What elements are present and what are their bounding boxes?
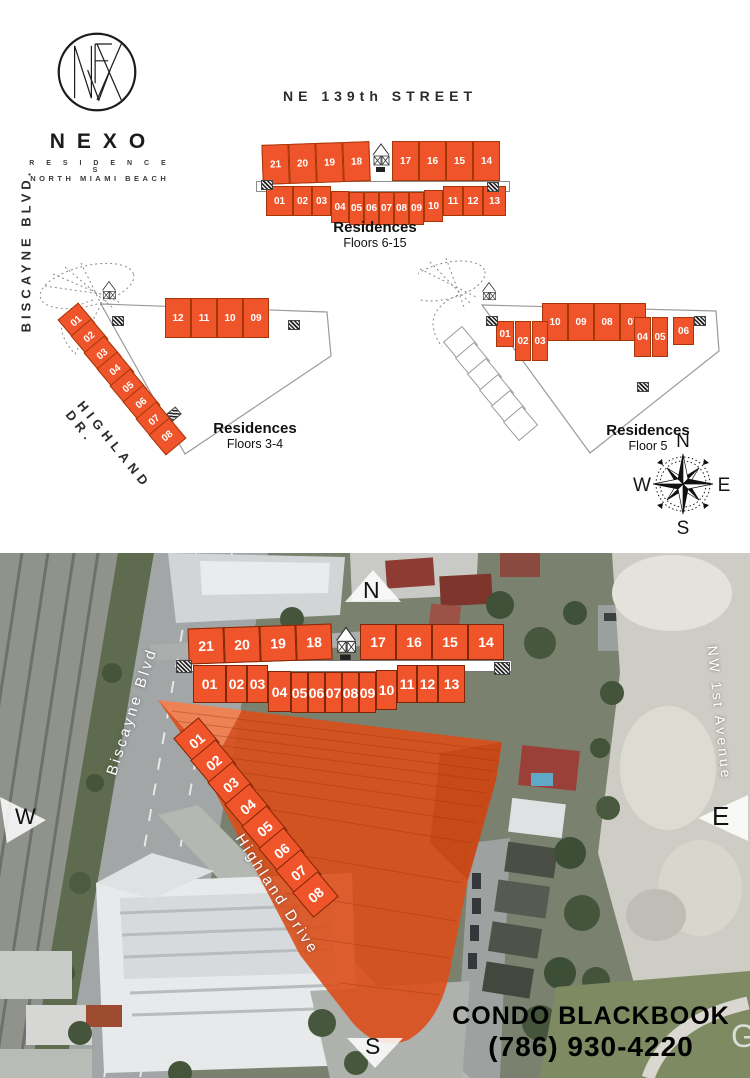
unit-number: 07 bbox=[381, 203, 392, 214]
unit-number: 08 bbox=[343, 685, 359, 701]
unit-number: 15 bbox=[454, 156, 465, 167]
unit-number: 03 bbox=[316, 196, 327, 207]
compass-rose-icon: N E S W bbox=[633, 430, 733, 538]
unit-number: 05 bbox=[654, 332, 665, 343]
stair-core-hatch bbox=[288, 320, 300, 330]
unit-box: 16 bbox=[396, 624, 432, 660]
unit-number: 09 bbox=[360, 685, 376, 701]
unit-number: 11 bbox=[448, 196, 459, 207]
unit-box: 10 bbox=[376, 670, 397, 710]
unit-box: 20 bbox=[223, 626, 260, 663]
aerial-bottom-row: 01020304050607080910111213 bbox=[193, 665, 465, 706]
compass-west-label: W bbox=[633, 475, 651, 496]
unit-box: 08 bbox=[594, 303, 620, 341]
unit-box: 09 bbox=[243, 298, 269, 338]
aerial-keyplan: 21201918 17161514 0102030405060708091011… bbox=[188, 624, 504, 716]
keyplan1-label: Residences Floors 6-15 bbox=[305, 219, 445, 250]
aerial-east-marker: E bbox=[712, 801, 729, 832]
unit-number: 14 bbox=[478, 634, 494, 650]
stair-core-hatch bbox=[694, 316, 706, 326]
unit-box: 11 bbox=[397, 665, 417, 703]
unit-number: 10 bbox=[224, 313, 235, 324]
stair-core-hatch bbox=[487, 182, 499, 192]
unit-box: 18 bbox=[295, 623, 332, 660]
unit-box: 06 bbox=[308, 672, 325, 713]
unit-number: 12 bbox=[467, 196, 478, 207]
unit-box: 09 bbox=[359, 672, 376, 713]
unit-number: 21 bbox=[198, 638, 214, 655]
street-label-ne-139th: NE 139th STREET bbox=[280, 88, 480, 104]
unit-number: 03 bbox=[250, 676, 266, 692]
unit-number: 14 bbox=[481, 156, 492, 167]
unit-number: 02 bbox=[517, 336, 528, 347]
unit-number: 06 bbox=[366, 203, 377, 214]
unit-number: 04 bbox=[272, 684, 288, 700]
unit-number: 01 bbox=[202, 676, 218, 692]
unit-box: 01 bbox=[193, 665, 226, 703]
unit-number: 21 bbox=[270, 159, 282, 170]
core-gap bbox=[480, 279, 498, 309]
unit-box: 14 bbox=[468, 624, 504, 660]
unit-number: 07 bbox=[326, 685, 342, 701]
unit-box: 03 bbox=[247, 665, 268, 703]
unit-box: 09 bbox=[568, 303, 594, 341]
unit-number: 17 bbox=[400, 156, 411, 167]
core-gap bbox=[370, 141, 392, 175]
keyplan2-top-right-units: 12111009 bbox=[165, 298, 269, 338]
unit-number: 13 bbox=[489, 196, 500, 207]
unit-box: 02 bbox=[515, 321, 531, 361]
unit-number: 16 bbox=[427, 156, 438, 167]
aerial-top-left-units: 21201918 bbox=[187, 623, 332, 664]
unit-number: 16 bbox=[406, 634, 422, 650]
core-gap bbox=[100, 278, 118, 308]
unit-number: 08 bbox=[304, 883, 326, 905]
keyplan1-bottom-row: 01020304050607080910111213 bbox=[266, 186, 506, 219]
unit-number: 09 bbox=[575, 317, 586, 328]
unit-number: 10 bbox=[549, 317, 560, 328]
stair-elevator-icon bbox=[100, 278, 118, 308]
keyplan2-top-row: 16151413 12111009 bbox=[100, 278, 118, 308]
unit-box: 10 bbox=[424, 190, 443, 222]
unit-number: 11 bbox=[400, 676, 415, 692]
keyplan1-top-row: 21201918 17161514 bbox=[262, 141, 508, 181]
unit-number: 04 bbox=[637, 332, 648, 343]
keyplan1-top-left-units: 21201918 bbox=[261, 141, 370, 185]
unit-box: 20 bbox=[288, 143, 316, 184]
unit-number: 10 bbox=[379, 682, 395, 698]
unit-box: 11 bbox=[443, 186, 463, 216]
unit-box: 02 bbox=[226, 665, 247, 703]
unit-box: 01 bbox=[496, 321, 514, 347]
unit-number: 01 bbox=[499, 329, 510, 340]
unit-number: 05 bbox=[351, 203, 362, 214]
keyplan2-subtitle: Floors 3-4 bbox=[185, 437, 325, 451]
unit-box: 21 bbox=[261, 144, 289, 185]
unit-box: 12 bbox=[417, 665, 438, 703]
street-label-biscayne-blvd: BISCAYNE BLVD. bbox=[19, 163, 34, 339]
unit-number: 15 bbox=[442, 634, 458, 650]
stair-core-hatch bbox=[486, 316, 498, 326]
unit-number: 08 bbox=[396, 203, 407, 214]
unit-box: 12 bbox=[165, 298, 191, 338]
unit-box: 19 bbox=[259, 625, 296, 662]
unit-number: 02 bbox=[297, 196, 308, 207]
unit-number: 12 bbox=[172, 313, 183, 324]
unit-box: 06 bbox=[673, 317, 694, 345]
aerial-top-row: 21201918 17161514 bbox=[188, 624, 504, 664]
contact-name: CONDO BLACKBOOK bbox=[438, 1001, 744, 1031]
keyplan1-top-right-units: 17161514 bbox=[392, 141, 500, 181]
aerial-top-right-units: 17161514 bbox=[360, 624, 504, 660]
aerial-south-marker: S bbox=[365, 1033, 380, 1060]
unit-number: 20 bbox=[297, 158, 309, 169]
nexo-siteplan-page: NEXO R E S I D E N C E S NORTH MIAMI BEA… bbox=[0, 0, 750, 1078]
unit-number: 18 bbox=[351, 156, 363, 167]
unit-number: 19 bbox=[324, 157, 336, 168]
brand-tagline-residences: R E S I D E N C E S bbox=[20, 160, 175, 174]
unit-box: 19 bbox=[315, 142, 343, 183]
stair-core-hatch bbox=[176, 660, 192, 673]
unit-box: 10 bbox=[217, 298, 243, 338]
unit-number: 04 bbox=[334, 202, 345, 213]
unit-number: 11 bbox=[199, 313, 210, 324]
unit-box: 12 bbox=[463, 186, 483, 216]
stair-core-hatch bbox=[112, 316, 124, 326]
aerial-north-marker: N bbox=[363, 577, 380, 604]
unit-box: 18 bbox=[342, 141, 370, 182]
unit-box: 17 bbox=[392, 141, 419, 181]
unit-box: 11 bbox=[191, 298, 217, 338]
stair-elevator-icon bbox=[333, 624, 359, 664]
unit-box: 04 bbox=[634, 317, 651, 357]
keyplan1-title: Residences bbox=[305, 219, 445, 236]
stair-elevator-icon bbox=[370, 141, 392, 175]
unit-box: 15 bbox=[432, 624, 468, 660]
unit-number: 12 bbox=[420, 676, 436, 692]
brand-name: NEXO bbox=[20, 130, 175, 154]
map-watermark: G bbox=[731, 1018, 750, 1055]
unit-box: 05 bbox=[291, 672, 308, 713]
stair-core-hatch bbox=[261, 180, 273, 190]
unit-number: 09 bbox=[250, 313, 261, 324]
unit-number: 17 bbox=[370, 634, 386, 650]
stair-core-hatch bbox=[637, 382, 649, 392]
unit-box: 02 bbox=[293, 186, 312, 216]
unit-box: 13 bbox=[438, 665, 465, 703]
unit-box: 16 bbox=[419, 141, 446, 181]
unit-box: 04 bbox=[268, 671, 291, 712]
aerial-west-marker: W bbox=[15, 804, 36, 830]
contact-phone: (786) 930-4220 bbox=[438, 1031, 744, 1063]
unit-number: 03 bbox=[534, 336, 545, 347]
unit-box: 05 bbox=[652, 317, 668, 357]
compass-south-label: S bbox=[677, 518, 690, 538]
keyplan1-subtitle: Floors 6-15 bbox=[305, 236, 445, 250]
unit-number: 19 bbox=[270, 635, 286, 652]
unit-number: 02 bbox=[229, 676, 245, 692]
unit-number: 08 bbox=[601, 317, 612, 328]
unit-number: 10 bbox=[428, 201, 439, 212]
unit-box: 01 bbox=[266, 186, 293, 216]
unit-number: 13 bbox=[444, 676, 460, 692]
keyplan3-top-right-units: 10090807 bbox=[542, 303, 646, 341]
unit-box: 21 bbox=[187, 627, 224, 664]
contact-block: CONDO BLACKBOOK (786) 930-4220 bbox=[438, 1001, 744, 1063]
keyplan2-label: Residences Floors 3-4 bbox=[185, 420, 325, 451]
compass-north-label: N bbox=[676, 431, 690, 452]
unit-box: 08 bbox=[342, 672, 359, 713]
keyplan-floors-6-15: 21201918 17161514 0102030405060708091011… bbox=[262, 141, 508, 221]
unit-box: 14 bbox=[473, 141, 500, 181]
unit-number: 20 bbox=[234, 636, 250, 653]
unit-box: 03 bbox=[532, 321, 548, 361]
keyplan2-title: Residences bbox=[185, 420, 325, 437]
unit-number: 05 bbox=[292, 685, 308, 701]
compass-east-label: E bbox=[718, 475, 731, 496]
brand-tagline-location: NORTH MIAMI BEACH bbox=[12, 174, 184, 183]
unit-box: 03 bbox=[312, 186, 331, 216]
unit-box: 07 bbox=[325, 672, 342, 713]
unit-number: 01 bbox=[274, 196, 285, 207]
nexo-monogram-icon bbox=[55, 30, 139, 114]
unit-number: 08 bbox=[160, 429, 176, 445]
stair-core-hatch bbox=[494, 662, 510, 675]
unit-number: 06 bbox=[309, 685, 325, 701]
unit-box: 17 bbox=[360, 624, 396, 660]
stair-elevator-icon bbox=[480, 279, 498, 309]
unit-number: 18 bbox=[306, 634, 322, 651]
unit-number: 09 bbox=[411, 203, 422, 214]
unit-box: 15 bbox=[446, 141, 473, 181]
keyplan3-top-row: 14131211 10090807 bbox=[480, 279, 498, 309]
core-gap bbox=[332, 624, 360, 664]
unit-number: 06 bbox=[678, 326, 689, 337]
